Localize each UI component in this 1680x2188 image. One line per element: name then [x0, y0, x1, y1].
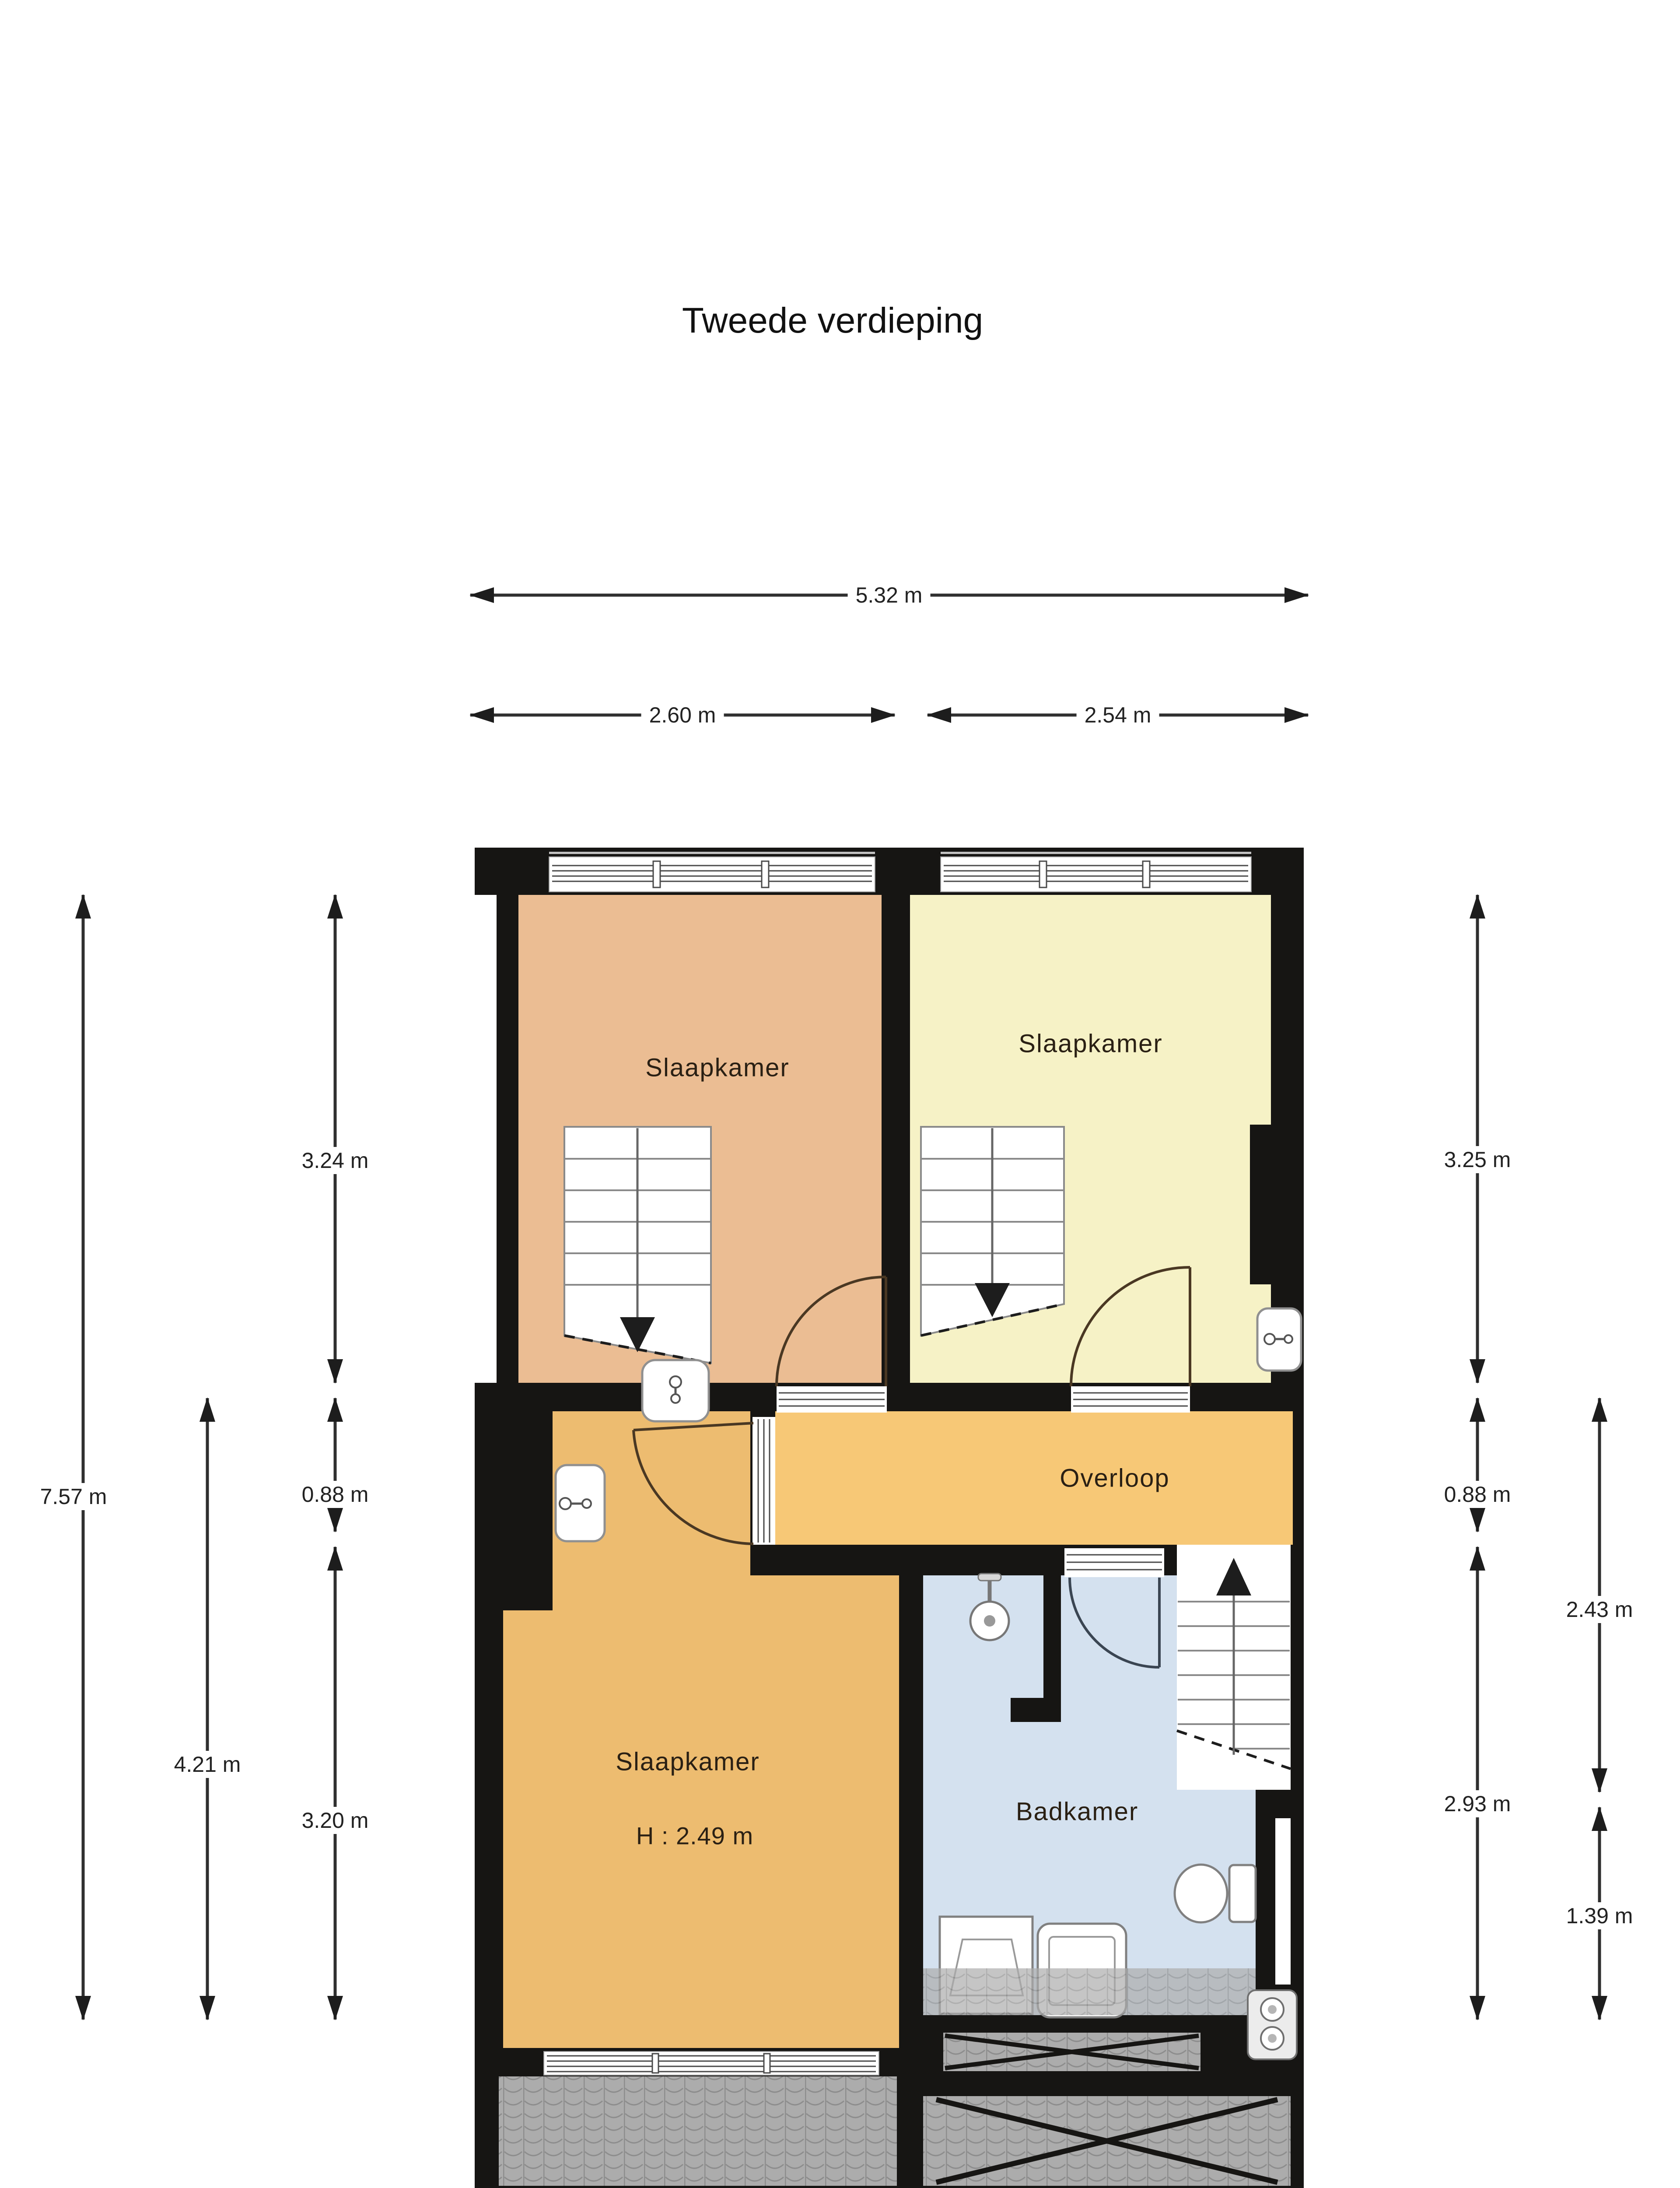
window-top-right — [941, 857, 1251, 892]
room-label-bedroom-bottom: Slaapkamer — [616, 1747, 759, 1777]
door-threshold-top-right — [1071, 1386, 1190, 1413]
door-threshold-bedroom-bottom — [752, 1417, 775, 1545]
dim-label-7-57: 7.57 m — [32, 1483, 115, 1510]
dim-label-2-54: 2.54 m — [1077, 701, 1159, 729]
floorplan — [475, 848, 1304, 2188]
dim-label-0-88-left: 0.88 m — [294, 1481, 377, 1508]
radiator-bedroom-bottom — [556, 1465, 605, 1541]
room-label-bedroom-top-right: Slaapkamer — [1018, 1029, 1162, 1059]
door-threshold-bathroom — [1064, 1548, 1164, 1577]
room-label-landing: Overloop — [1060, 1464, 1169, 1493]
radiator-top-left — [642, 1360, 709, 1421]
window-bottom — [544, 2051, 879, 2075]
dim-label-4-21: 4.21 m — [166, 1751, 249, 1778]
dim-label-0-88-right: 0.88 m — [1436, 1481, 1519, 1508]
chimney-shaft — [1250, 1125, 1276, 1284]
page-title: Tweede verdieping — [682, 300, 983, 341]
door-threshold-top-left — [777, 1386, 887, 1413]
dim-label-2-60: 2.60 m — [641, 701, 724, 729]
dim-label-5-32: 5.32 m — [848, 582, 931, 609]
dim-label-2-43: 2.43 m — [1558, 1596, 1641, 1623]
dim-label-3-25: 3.25 m — [1436, 1146, 1519, 1173]
dim-label-1-39: 1.39 m — [1558, 1902, 1641, 1929]
dim-label-3-20: 3.20 m — [294, 1807, 377, 1834]
window-top-left — [549, 857, 875, 892]
room-label-bedroom-top-left: Slaapkamer — [645, 1053, 789, 1083]
stair-void-strip — [1275, 1818, 1291, 1985]
room-label-bathroom: Badkamer — [1016, 1797, 1138, 1827]
room-landing — [775, 1411, 1293, 1545]
stairs-top-left — [564, 1127, 711, 1363]
dim-label-2-93: 2.93 m — [1436, 1790, 1519, 1817]
roof-overlay-bathroom — [923, 1968, 1256, 2015]
left-wall-recess — [475, 895, 497, 1383]
roof-cross-strip — [923, 2033, 1221, 2071]
radiator-top-right — [1257, 1308, 1301, 1371]
toilet-icon — [1175, 1865, 1256, 1922]
stairs-top-right — [921, 1127, 1064, 1336]
boiler-icon — [1248, 1990, 1297, 2059]
roof-tiles-left — [499, 2076, 897, 2186]
dim-label-3-24: 3.24 m — [294, 1147, 377, 1174]
roof-cross-large — [923, 2096, 1291, 2186]
room-label-bedroom-bottom-height: H : 2.49 m — [636, 1822, 753, 1850]
